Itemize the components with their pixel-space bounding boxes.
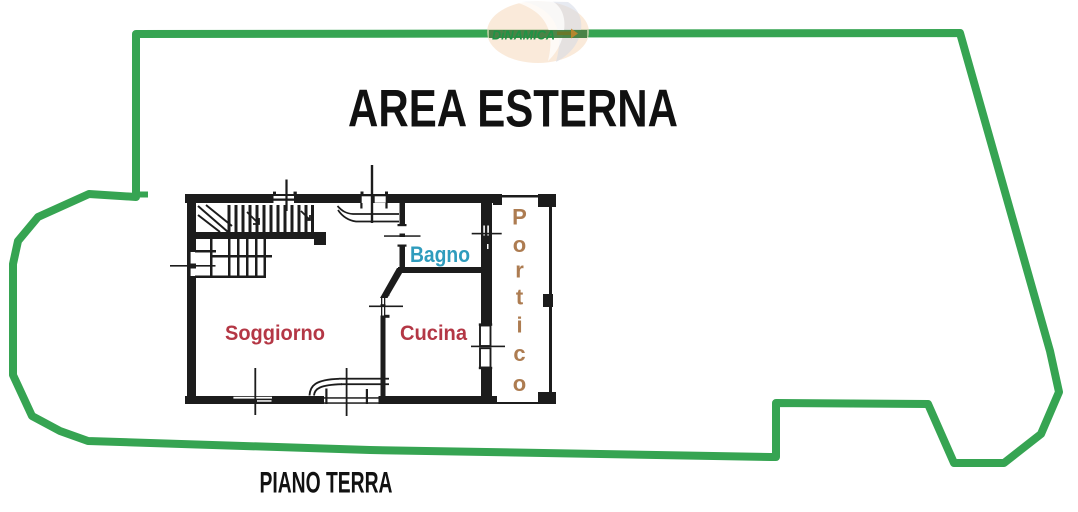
svg-text:i: i — [516, 313, 522, 338]
svg-text:DiNAMICA: DiNAMICA — [492, 29, 555, 43]
svg-text:P: P — [512, 205, 527, 230]
svg-text:r: r — [515, 258, 524, 283]
svg-text:Soggiorno: Soggiorno — [225, 322, 325, 345]
svg-text:Cucina: Cucina — [400, 322, 467, 345]
svg-text:Bagno: Bagno — [410, 242, 470, 267]
svg-text:o: o — [513, 232, 526, 257]
svg-text:o: o — [513, 371, 526, 396]
svg-text:t: t — [516, 285, 524, 310]
svg-text:AREA ESTERNA: AREA ESTERNA — [348, 80, 678, 139]
svg-text:PIANO TERRA: PIANO TERRA — [260, 467, 393, 500]
svg-text:c: c — [513, 341, 525, 366]
